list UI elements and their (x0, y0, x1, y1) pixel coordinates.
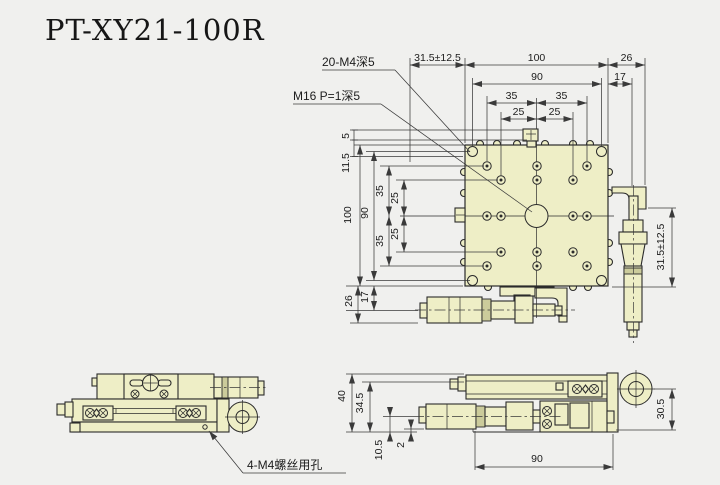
dim-bottom-offset-label: 26 (343, 295, 355, 307)
y-axis-micrometer (612, 185, 647, 343)
dim-x-travel-label: 31.5±12.5 (414, 52, 461, 64)
dim-y-travel-label: 31.5±12.5 (655, 224, 667, 271)
m16-center-hole (525, 205, 548, 228)
dim-25-right-label: 25 (549, 106, 561, 118)
side-lower-assembly (413, 401, 614, 432)
front-micrometer (210, 377, 268, 398)
x-axis-micrometer (415, 288, 575, 323)
left-edge-tab (455, 208, 465, 222)
dim-hole-span-label: 90 (531, 71, 543, 83)
dim-35-top-label: 35 (374, 185, 386, 197)
front-left-knob (57, 402, 73, 417)
dim-ring-height-label: 30.5 (655, 399, 667, 420)
front-base-strip (72, 422, 217, 432)
drawing-title: PT-XY21-100R (45, 13, 265, 47)
dim-25-bottom-label: 25 (389, 228, 401, 240)
dim-35-right-label: 35 (556, 90, 568, 102)
dim-stage-height-inner-label: 34.5 (354, 393, 366, 414)
dim-stage-height-label: 40 (336, 390, 348, 402)
dim-35-left-label: 35 (506, 90, 518, 102)
dim-hole-span-v-label: 90 (359, 207, 371, 219)
dim-axis-height-label: 10.5 (373, 440, 385, 461)
front-ring (225, 400, 260, 434)
callout-screw-holes-label: 4-M4螺丝用孔 (247, 458, 322, 472)
dim-35-bottom-label: 35 (374, 235, 386, 247)
dim-base-gap-label: 2 (395, 442, 407, 448)
side-view: 40 34.5 10.5 2 90 30.5 (336, 370, 676, 470)
plan-view: 31.5±12.5 100 26 90 17 35 35 25 25 (293, 52, 676, 343)
dim-right-offset-label: 26 (621, 52, 633, 64)
front-view: 4-M4螺丝用孔 (57, 374, 346, 473)
side-upper-assembly (450, 375, 613, 399)
dim-25-top-label: 25 (389, 192, 401, 204)
drawing-canvas: PT-XY21-100R (0, 0, 720, 485)
dim-plate-height-label: 100 (342, 206, 354, 224)
dim-25-left-label: 25 (513, 106, 525, 118)
top-center-block (523, 129, 538, 147)
dim-plate-width-label: 100 (528, 52, 546, 64)
callout-m16-label: M16 P=1深5 (293, 89, 360, 103)
dim-body-width-label: 90 (531, 453, 543, 465)
front-callout: 4-M4螺丝用孔 (209, 431, 346, 473)
front-m4-screw (203, 425, 207, 429)
dim-right-inner-label: 17 (614, 71, 626, 83)
dim-edge-offset-label: 11.5 (340, 153, 352, 173)
technical-drawing: PT-XY21-100R (0, 0, 720, 485)
dim-bottom-inner-label: 17 (359, 291, 371, 303)
side-ring (617, 370, 655, 408)
callout-m4-label: 20-M4深5 (322, 55, 375, 69)
dim-block-step-label: 5 (340, 133, 352, 139)
